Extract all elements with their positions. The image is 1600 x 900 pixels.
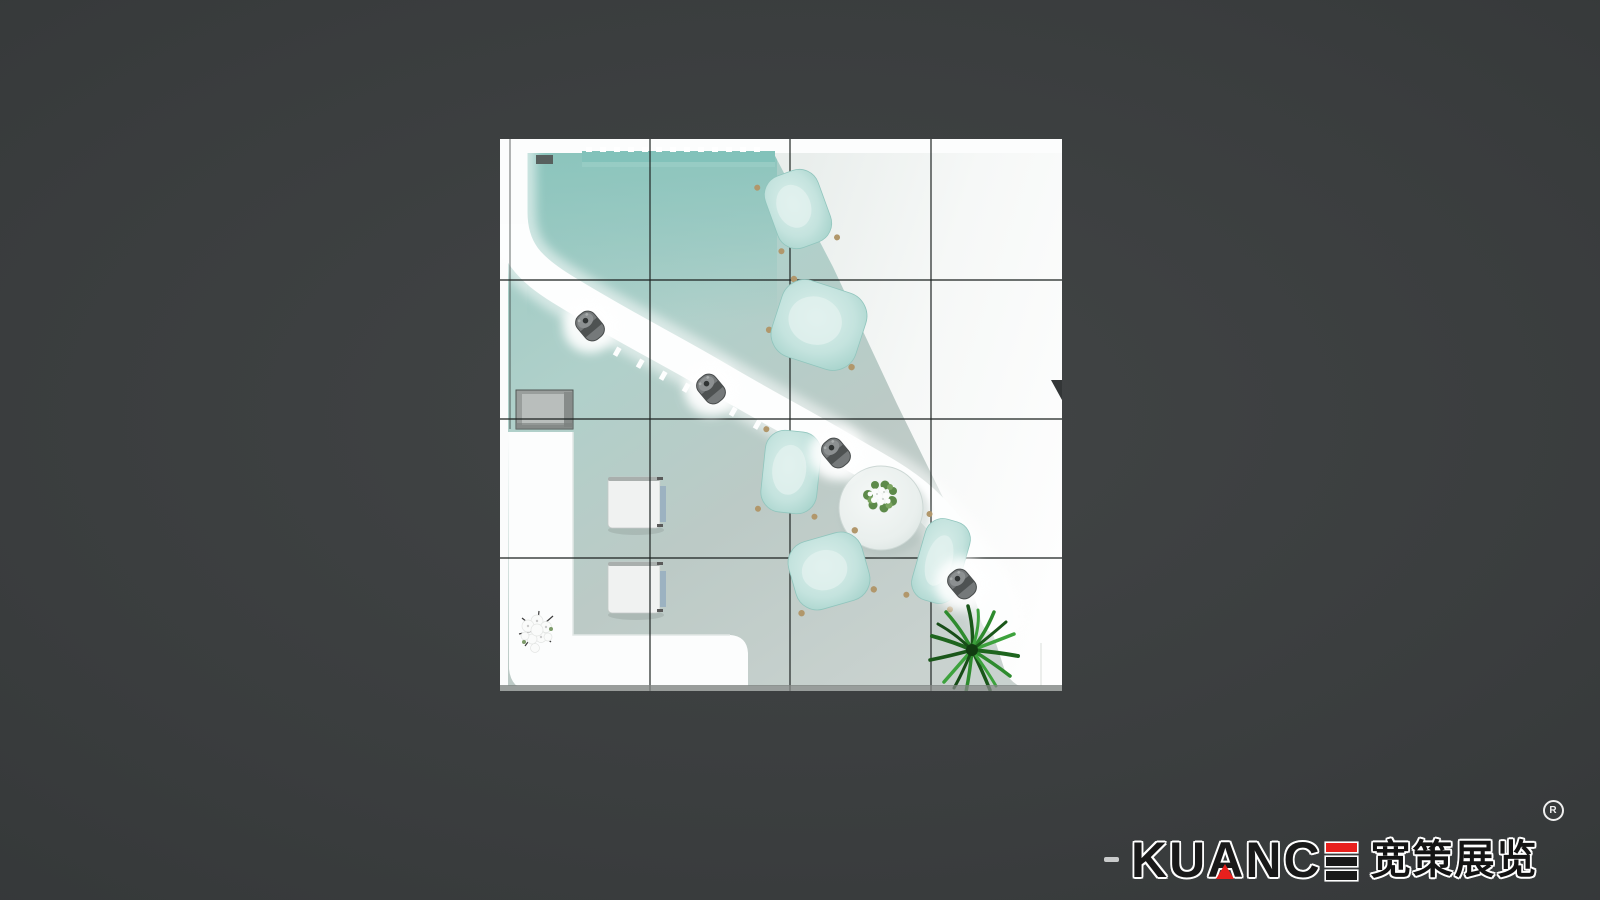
brand-letter-a-glyph: A [1207, 832, 1243, 888]
registered-trademark-icon: R [1543, 800, 1564, 821]
storage-cabinet [516, 390, 573, 429]
floor-plan-render [500, 139, 1062, 691]
cube-seat-1 [608, 477, 666, 535]
top-wall-strip [500, 139, 1062, 153]
bar-stool-4 [935, 557, 989, 611]
brand-letter-e [1326, 843, 1357, 880]
floor-plan-svg [500, 139, 1062, 691]
brand-letter-a: A [1207, 841, 1243, 880]
brand-logo: K U A N C 宽策展览 R [1104, 806, 1564, 880]
bar-stool-3 [809, 426, 863, 480]
brand-letter-n: N [1245, 841, 1281, 880]
platform-bottom-edge [500, 685, 1062, 691]
bar-stool-2 [684, 362, 738, 416]
red-triangle-accent [1216, 864, 1234, 879]
bar-stool-1 [563, 299, 617, 353]
brand-letter-c: C [1283, 841, 1319, 880]
brand-wordmark: K U A N C [1131, 841, 1357, 880]
e-bottom-bar [1326, 871, 1357, 880]
desk-end-dark-mark [536, 155, 553, 164]
e-top-bar-red [1326, 843, 1357, 852]
brand-letter-k: K [1131, 841, 1167, 880]
left-wall-strip [500, 139, 527, 224]
brand-chinese-name: 宽策展览 [1371, 842, 1539, 879]
logo-dash [1104, 857, 1119, 862]
e-middle-bar [1326, 857, 1357, 866]
brand-letter-u: U [1169, 841, 1205, 880]
cube-seat-2 [608, 562, 666, 620]
